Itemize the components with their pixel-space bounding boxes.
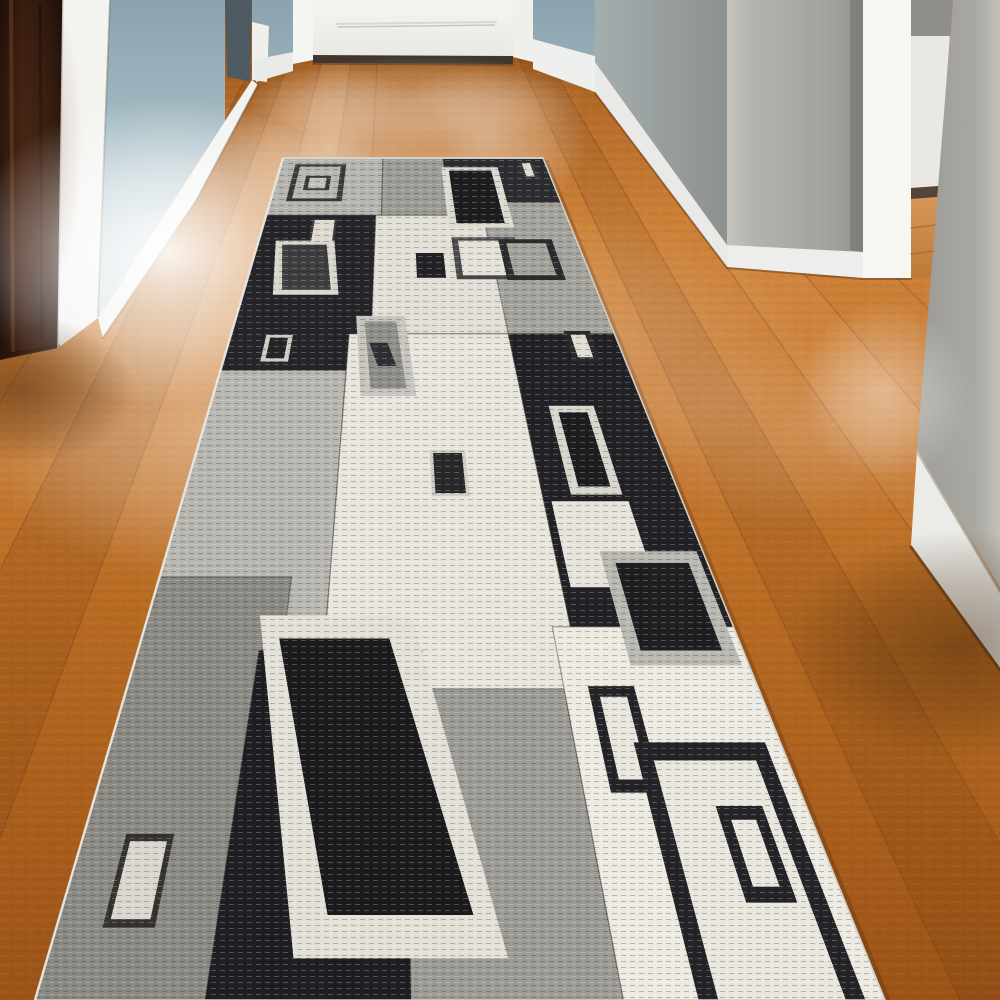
hall-door-casing-right — [513, 0, 533, 62]
far-room-threshold — [911, 186, 939, 199]
glare-far-floor — [250, 55, 590, 145]
glare-near-right-base — [800, 300, 970, 480]
hallway-photograph — [0, 0, 1000, 1000]
wall-corner-pillar-dark — [225, 0, 252, 81]
hall-door — [313, 0, 513, 60]
hall-door-casing-left — [293, 0, 313, 64]
doorway-frame-column — [863, 0, 911, 278]
pillar-frame-shadow — [850, 0, 864, 252]
far-room-wall-top — [911, 0, 953, 36]
scene-svg — [0, 0, 1000, 1000]
gray-pillar-face — [727, 0, 863, 252]
